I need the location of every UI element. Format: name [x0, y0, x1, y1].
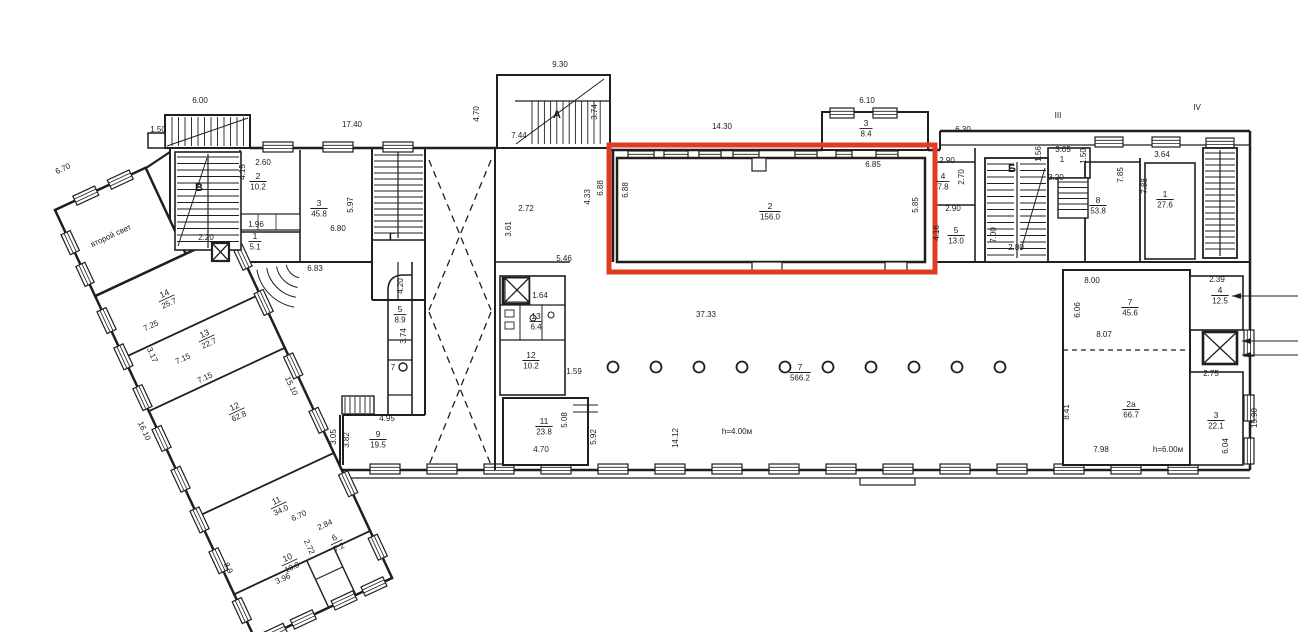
dim-label: 3.74: [590, 104, 599, 120]
dim-label: 7: [391, 363, 396, 372]
dim-label: 4.33: [583, 189, 592, 205]
svg-text:1: 1: [253, 231, 258, 241]
svg-text:10.2: 10.2: [250, 183, 266, 192]
room-label: 1: [1060, 154, 1065, 164]
dim-label: 9.30: [552, 60, 568, 69]
dim-label: 8.00: [1084, 276, 1100, 285]
stair-letter: А: [553, 109, 561, 121]
stair-letter: В: [195, 182, 203, 194]
dim-label: 5.08: [560, 412, 569, 428]
dim-label: 14.12: [671, 427, 680, 448]
dim-label: 6.30: [955, 125, 971, 134]
svg-text:2а: 2а: [1126, 399, 1136, 409]
dim-label: 17.40: [342, 120, 363, 129]
dim-label: 8.41: [1062, 404, 1071, 420]
dim-label: 6.04: [1221, 438, 1230, 454]
dim-label: 6.06: [1073, 302, 1082, 318]
dim-label: 2.20: [198, 233, 214, 242]
dim-label: 4.70: [472, 106, 481, 122]
room-label: 15.1: [249, 231, 262, 252]
svg-text:4: 4: [1218, 285, 1223, 295]
svg-text:11: 11: [540, 416, 549, 426]
svg-text:5: 5: [954, 225, 959, 235]
svg-text:1: 1: [1060, 154, 1065, 164]
floor-plan-page: 6.001.5017.409.304.707.443.7414.306.106.…: [0, 0, 1300, 632]
dim-label: 2.90: [939, 156, 955, 165]
svg-text:566.2: 566.2: [790, 374, 811, 383]
svg-text:5: 5: [398, 304, 403, 314]
dim-label: h=4.00м: [722, 427, 752, 436]
svg-text:7: 7: [1128, 297, 1133, 307]
svg-text:27.6: 27.6: [1157, 201, 1173, 210]
dim-label: 1.64: [532, 291, 548, 300]
stair-letter: Б: [1008, 163, 1016, 175]
svg-text:10.2: 10.2: [523, 362, 539, 371]
dim-label: 2.39: [1209, 275, 1225, 284]
svg-text:12: 12: [526, 350, 536, 360]
dim-label: 2.80: [1008, 243, 1024, 252]
svg-text:19.5: 19.5: [370, 441, 386, 450]
dim-label: 3.64: [1154, 150, 1170, 159]
dim-label: 4.20: [396, 278, 405, 294]
dim-label: 7.98: [1093, 445, 1109, 454]
svg-text:23.8: 23.8: [536, 428, 552, 437]
svg-text:12.5: 12.5: [1212, 297, 1228, 306]
room-label: 47.8: [937, 171, 950, 192]
dim-label: 1.50: [150, 125, 166, 134]
dim-label: 14.30: [712, 122, 733, 131]
room-label: 513.0: [947, 225, 964, 246]
dim-label: 7.85: [1116, 167, 1125, 183]
room-label: 7566.2: [789, 362, 811, 383]
dim-label: 6.88: [596, 180, 605, 196]
dim-label: 5.46: [556, 254, 572, 263]
dim-label: 5.92: [589, 429, 598, 445]
dim-label: 6.70: [54, 161, 72, 176]
svg-text:4: 4: [941, 171, 946, 181]
dim-label: 7.44: [511, 131, 527, 140]
dim-label: 1.50: [1079, 148, 1088, 164]
room-label: 58.9: [394, 304, 407, 325]
svg-text:45.6: 45.6: [1122, 309, 1138, 318]
svg-text:2: 2: [768, 201, 773, 211]
floor-plan-drawing: 6.001.5017.409.304.707.443.7414.306.106.…: [0, 0, 1300, 632]
svg-text:156.0: 156.0: [760, 213, 781, 222]
dim-label: 5.85: [911, 197, 920, 213]
svg-text:22.1: 22.1: [1208, 422, 1224, 431]
svg-text:66.7: 66.7: [1123, 411, 1139, 420]
dim-label: 2.72: [518, 204, 534, 213]
svg-text:9: 9: [376, 429, 381, 439]
dim-label: 3.82: [342, 432, 351, 448]
svg-text:7.8: 7.8: [937, 183, 949, 192]
dim-label: 6.00: [192, 96, 208, 105]
svg-text:6.4: 6.4: [530, 323, 542, 332]
dim-label: 4.16: [932, 225, 941, 241]
dim-label: 2.60: [255, 158, 271, 167]
dim-label: 2.90: [945, 204, 961, 213]
dim-label: 37.33: [696, 310, 717, 319]
dim-label: 6.88: [621, 182, 630, 198]
svg-text:45.8: 45.8: [311, 210, 327, 219]
room-label: 210.2: [249, 171, 266, 192]
svg-text:3: 3: [317, 198, 322, 208]
dim-label: 7.88: [1140, 178, 1149, 194]
dim-label: 3.20: [1048, 173, 1064, 182]
svg-text:3: 3: [864, 118, 869, 128]
svg-text:3: 3: [1214, 410, 1219, 420]
room-label: 919.5: [369, 429, 386, 450]
svg-text:1: 1: [1163, 189, 1168, 199]
dim-label: IV: [1193, 103, 1201, 112]
svg-text:7: 7: [798, 362, 803, 372]
dim-label: 4.95: [379, 414, 395, 423]
svg-text:53.8: 53.8: [1090, 207, 1106, 216]
room-label: 136.4: [530, 311, 543, 332]
stair-letter: Г: [389, 231, 396, 243]
dim-label: 5.97: [346, 197, 355, 213]
dim-label: 16.10: [136, 420, 153, 442]
dim-label: 1.96: [248, 220, 264, 229]
dim-label: 6.83: [307, 264, 323, 273]
room-label: 345.8: [310, 198, 327, 219]
svg-text:5.1: 5.1: [249, 243, 261, 252]
room-label: 853.8: [1089, 195, 1106, 216]
dim-label: III: [1055, 111, 1062, 120]
svg-text:8: 8: [1096, 195, 1101, 205]
svg-text:13.0: 13.0: [948, 237, 964, 246]
dim-label: 1.56: [1034, 146, 1043, 162]
columns-layer: [608, 362, 1006, 373]
dim-label: 1.59: [566, 367, 582, 376]
dim-label: 15.90: [1250, 407, 1259, 428]
dim-label: 8.07: [1096, 330, 1112, 339]
dim-label: 3.61: [504, 221, 513, 237]
dim-label: 6.85: [865, 160, 881, 169]
dim-label: 3.05: [329, 429, 338, 445]
dim-label: 7.00: [989, 227, 998, 243]
dim-label: 3.74: [399, 328, 408, 344]
dim-label: 2.70: [957, 169, 966, 185]
dim-label: 4.15: [238, 164, 247, 180]
svg-text:8.9: 8.9: [394, 316, 406, 325]
svg-text:13: 13: [531, 311, 541, 321]
dim-label: h=6.00м: [1153, 445, 1183, 454]
dim-label: 6.10: [859, 96, 875, 105]
dim-label: 2.75: [1203, 369, 1219, 378]
dim-label: 4.70: [533, 445, 549, 454]
dim-label: 6.80: [330, 224, 346, 233]
svg-text:8.4: 8.4: [860, 130, 872, 139]
svg-text:2: 2: [256, 171, 261, 181]
dim-label: 3.05: [1055, 145, 1071, 154]
lightwell-dashed-layer: [429, 160, 491, 465]
